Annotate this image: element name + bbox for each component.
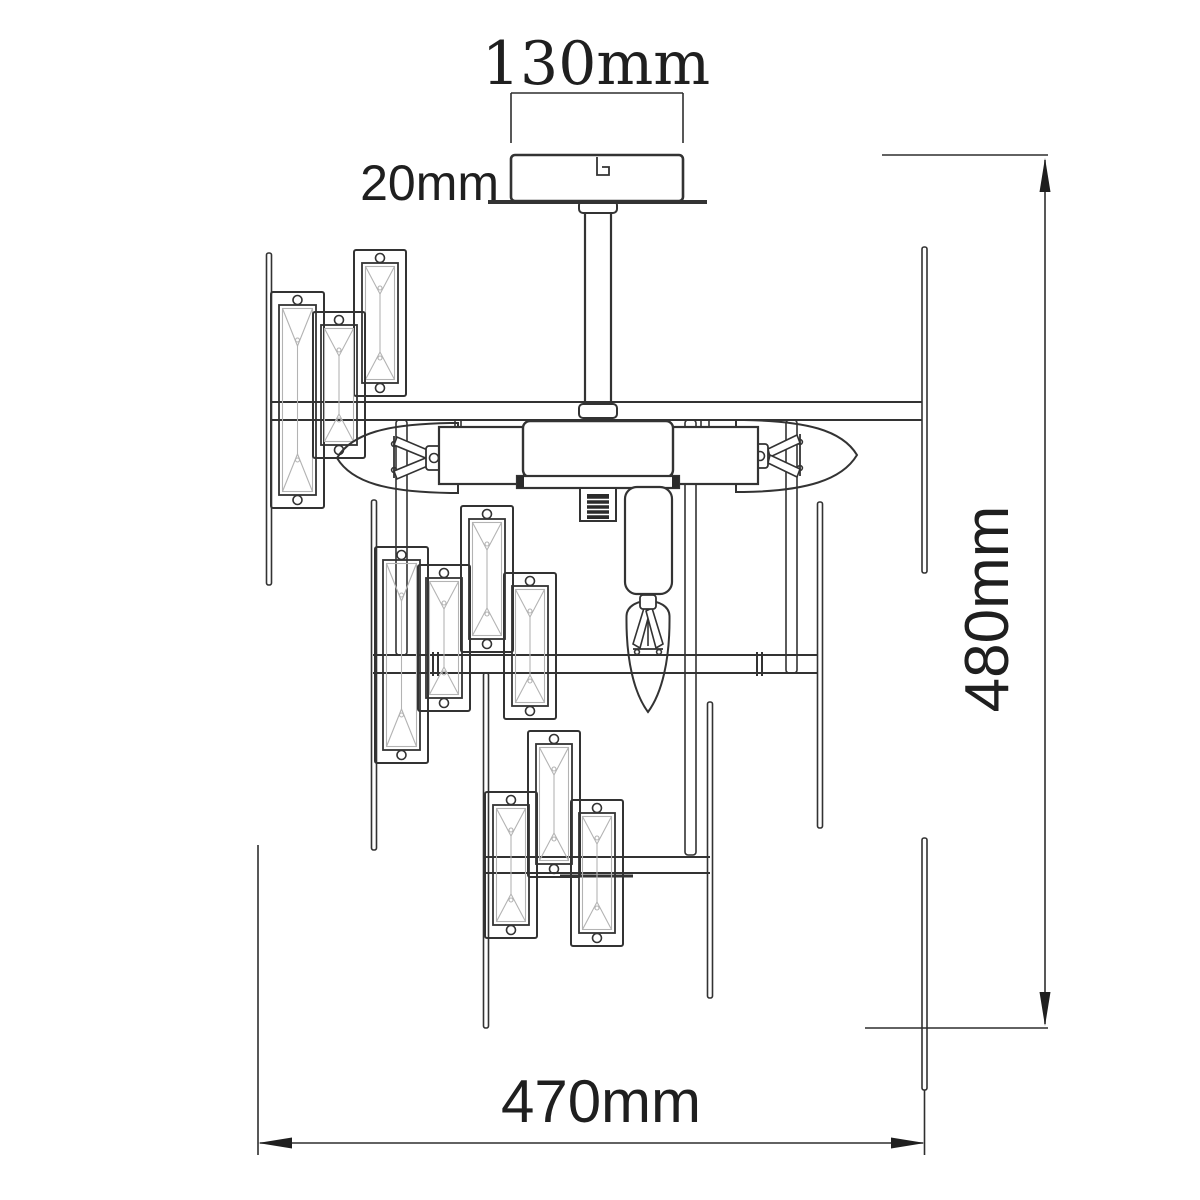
bulb-socket-cup bbox=[439, 427, 524, 484]
arrow-left-icon bbox=[258, 1138, 292, 1149]
crystal-prism bbox=[528, 731, 580, 877]
arrow-right-icon bbox=[891, 1138, 925, 1149]
dimension-overall-width: 470mm bbox=[258, 845, 925, 1155]
crystal-group-upper-left bbox=[271, 250, 406, 508]
crystal-prism bbox=[313, 312, 365, 458]
overall-height-label: 480mm bbox=[953, 506, 1022, 713]
rod bbox=[922, 247, 927, 573]
crystal-prism bbox=[418, 565, 470, 711]
canopy-width-label: 130mm bbox=[482, 29, 710, 99]
crystal-prism bbox=[375, 547, 428, 763]
dimension-canopy-width: 130mm bbox=[482, 29, 710, 143]
candle-sleeve bbox=[625, 487, 672, 594]
rod bbox=[708, 702, 713, 998]
crystal-group-middle bbox=[375, 506, 556, 763]
crystal-prism bbox=[504, 573, 556, 719]
rod bbox=[922, 838, 927, 1090]
crystal-group-lower bbox=[485, 731, 623, 946]
right-candle-bulb bbox=[672, 420, 857, 492]
bulb-filament bbox=[633, 595, 663, 654]
crystal-prism bbox=[354, 250, 406, 396]
crystal-prism bbox=[461, 506, 513, 652]
ceiling-mount bbox=[488, 155, 707, 202]
crystal-prism bbox=[485, 792, 537, 938]
arrow-up-icon bbox=[1040, 158, 1051, 192]
dimension-overall-height: 480mm bbox=[865, 155, 1051, 1028]
rod bbox=[685, 420, 696, 855]
stem-collar-bottom bbox=[579, 404, 617, 418]
bottom-candle-bulb bbox=[625, 487, 672, 712]
crystal-prism bbox=[271, 292, 324, 508]
bulb-filament bbox=[392, 436, 442, 479]
technical-drawing-page: 130mm 20mm 480mm 470mm bbox=[0, 0, 1200, 1200]
hub-body bbox=[523, 421, 673, 477]
bulb-filament bbox=[752, 434, 802, 477]
rod bbox=[818, 502, 823, 828]
rod bbox=[786, 420, 797, 673]
bulb-socket-cup bbox=[672, 427, 758, 484]
stem bbox=[579, 201, 617, 418]
dimension-canopy-height: 20mm bbox=[360, 155, 499, 211]
overall-width-label: 470mm bbox=[501, 1068, 701, 1135]
chandelier-technical-drawing: 130mm 20mm 480mm 470mm bbox=[0, 0, 1200, 1200]
crystal-prism bbox=[571, 800, 623, 946]
canopy-height-label: 20mm bbox=[360, 155, 499, 211]
arrow-down-icon bbox=[1040, 992, 1051, 1026]
